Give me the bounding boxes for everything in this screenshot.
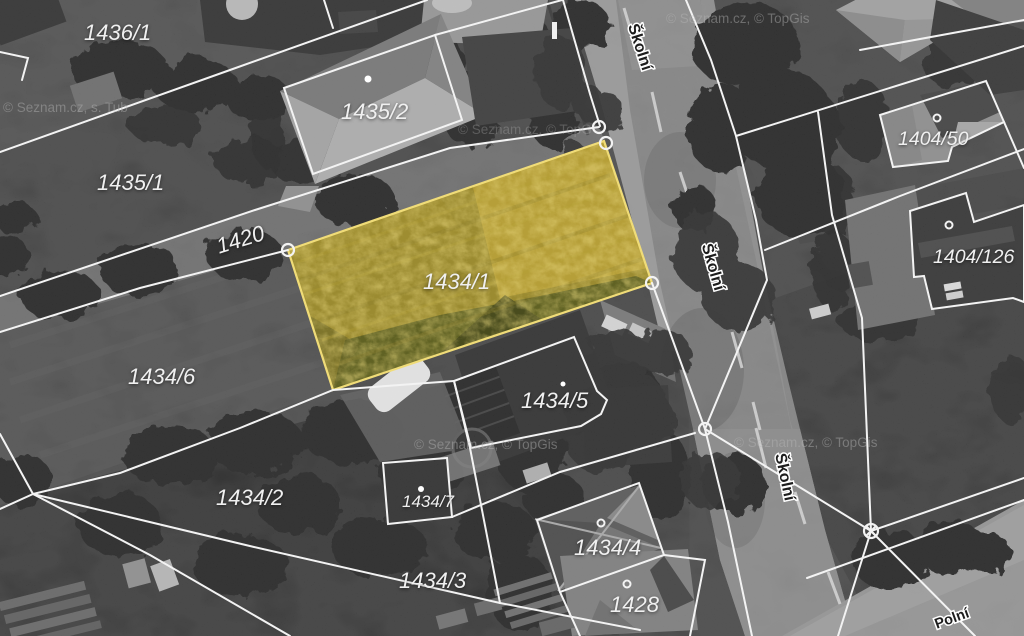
svg-text:1434/1: 1434/1 bbox=[423, 269, 490, 294]
svg-text:1434/7: 1434/7 bbox=[402, 492, 455, 511]
svg-text:© Seznam.cz, © TopGis: © Seznam.cz, © TopGis bbox=[666, 11, 810, 26]
svg-text:© Seznam.cz, © TopGis: © Seznam.cz, © TopGis bbox=[414, 437, 558, 452]
svg-text:© Seznam.cz, © TopGis: © Seznam.cz, © TopGis bbox=[734, 435, 878, 450]
svg-text:1434/2: 1434/2 bbox=[216, 485, 283, 510]
svg-text:1434/5: 1434/5 bbox=[521, 388, 589, 413]
svg-text:1434/6: 1434/6 bbox=[128, 364, 196, 389]
svg-text:© Seznam.cz, © TopG: © Seznam.cz, © TopG bbox=[458, 122, 592, 137]
svg-text:1404/126: 1404/126 bbox=[933, 246, 1014, 268]
svg-text:1434/4: 1434/4 bbox=[574, 535, 641, 560]
svg-text:1404/50: 1404/50 bbox=[898, 128, 969, 150]
svg-text:1436/1: 1436/1 bbox=[84, 20, 151, 45]
svg-text:1428: 1428 bbox=[610, 592, 660, 617]
svg-text:1435/1: 1435/1 bbox=[97, 170, 164, 195]
svg-text:© Seznam.cz, s. Tub: © Seznam.cz, s. Tub bbox=[3, 100, 128, 115]
svg-text:1434/3: 1434/3 bbox=[399, 568, 467, 593]
svg-text:1435/2: 1435/2 bbox=[341, 99, 408, 124]
